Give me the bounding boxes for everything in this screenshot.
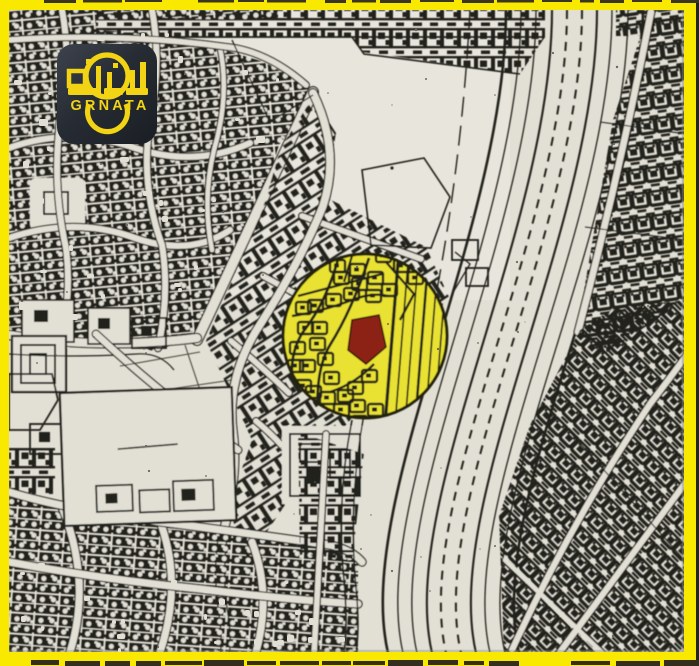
svg-text:GRNATA: GRNATA xyxy=(70,98,149,114)
